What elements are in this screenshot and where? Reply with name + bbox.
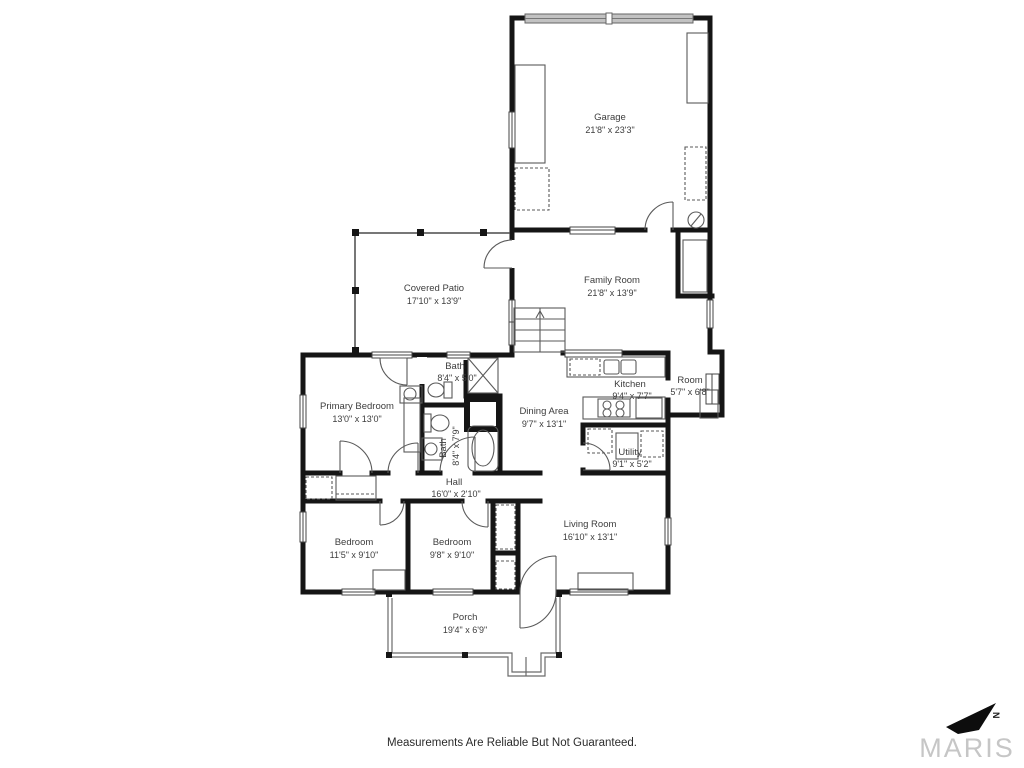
window-kitchen-family	[565, 350, 622, 357]
family-closet	[683, 240, 707, 292]
svg-text:Hall: Hall	[446, 477, 462, 488]
stairs	[514, 308, 565, 352]
svg-text:11'5" x 9'10": 11'5" x 9'10"	[330, 550, 379, 560]
room-label-family-room: Family Room 21'8" x 13'9"	[584, 275, 640, 298]
room-label-kitchen: Kitchen 9'4" x 7'7"	[612, 379, 651, 401]
svg-text:Room: Room	[677, 375, 702, 386]
svg-text:9'1" x 5'2": 9'1" x 5'2"	[612, 459, 651, 469]
door-front-porch	[520, 592, 556, 628]
svg-text:Bedroom: Bedroom	[433, 537, 472, 548]
svg-text:13'0" x 13'0": 13'0" x 13'0"	[332, 414, 381, 424]
logo-text: MARIS	[919, 733, 1015, 763]
svg-text:21'8" x 13'9": 21'8" x 13'9"	[587, 288, 636, 298]
compass-north-label: N	[991, 712, 1001, 719]
hall-closet-right	[336, 476, 376, 500]
svg-text:8'4" x 5'0": 8'4" x 5'0"	[437, 373, 476, 383]
svg-text:Covered Patio: Covered Patio	[404, 283, 464, 294]
svg-text:21'8" x 23'3": 21'8" x 23'3"	[585, 125, 634, 135]
room-label-primary-bedroom: Primary Bedroom 13'0" x 13'0"	[320, 401, 394, 424]
window-primary-left	[300, 395, 306, 428]
room-label-room: Room 5'7" x 6'8"	[670, 375, 709, 397]
window-bedroom-left	[300, 512, 306, 542]
room-label-bedroom-left: Bedroom 11'5" x 9'10"	[330, 537, 379, 560]
garage-shelf-right	[687, 33, 708, 103]
room-label-dining-area: Dining Area 9'7" x 13'1"	[519, 406, 569, 429]
svg-text:17'10" x 13'9": 17'10" x 13'9"	[407, 296, 461, 306]
bath-closet-block	[464, 396, 502, 432]
room-label-covered-patio: Covered Patio 17'10" x 13'9"	[404, 283, 464, 306]
window-bedroom1-bottom	[342, 589, 375, 595]
svg-text:Living Room: Living Room	[564, 519, 617, 530]
svg-text:Porch: Porch	[453, 612, 478, 623]
door-bedroom-middle	[462, 501, 488, 527]
room-label-utility: Utility 9'1" x 5'2"	[612, 447, 651, 469]
room-label-hall: Hall 16'0" x 2'10"	[431, 477, 480, 499]
window-bedroom2-bottom	[433, 589, 473, 595]
water-heater	[688, 212, 704, 228]
svg-text:Kitchen: Kitchen	[614, 379, 646, 390]
window-patio-top-2	[447, 352, 470, 358]
bathtub	[468, 426, 498, 471]
disclaimer-text: Measurements Are Reliable But Not Guaran…	[387, 737, 637, 749]
door-family-garage	[645, 202, 673, 230]
garage-storage-dashed	[515, 168, 549, 210]
bath-upper-vanity	[400, 386, 422, 403]
bath-upper-toilet	[428, 382, 452, 398]
svg-text:9'7" x 13'1": 9'7" x 13'1"	[522, 419, 566, 429]
window-living-right	[665, 518, 671, 545]
floorplan-page: Garage 21'8" x 23'3" Family Room 21'8" x…	[0, 0, 1024, 768]
svg-text:16'10" x 13'1": 16'10" x 13'1"	[563, 532, 617, 542]
room-label-porch: Porch 19'4" x 6'9"	[443, 612, 487, 635]
door-bath-upper	[380, 358, 407, 385]
porch-outline	[388, 594, 560, 676]
door-utility	[583, 443, 610, 470]
kitchen-counter-top	[567, 357, 665, 377]
room-label-garage: Garage 21'8" x 23'3"	[585, 112, 634, 135]
maris-logo: N MARIS	[919, 703, 1015, 763]
garage-workbench	[515, 65, 545, 163]
bath-lower-toilet	[424, 414, 449, 432]
svg-text:5'7" x 6'8": 5'7" x 6'8"	[670, 387, 709, 397]
svg-text:16'0" x 2'10": 16'0" x 2'10"	[431, 489, 480, 499]
door-front-interior	[520, 556, 556, 592]
svg-text:Utility: Utility	[618, 447, 641, 458]
hall-closet-left	[306, 477, 332, 499]
garage-storage-right	[685, 147, 706, 200]
window-family-right	[707, 300, 713, 328]
svg-text:Dining Area: Dining Area	[519, 406, 569, 417]
bedroom-dresser	[373, 570, 405, 590]
svg-text:9'4" x 7'7": 9'4" x 7'7"	[612, 391, 651, 401]
room-label-bedroom-middle: Bedroom 9'8" x 9'10"	[430, 537, 474, 560]
door-bedroom-left	[380, 501, 404, 525]
room-label-living-room: Living Room 16'10" x 13'1"	[563, 519, 617, 542]
window-patio-top-1	[372, 352, 412, 358]
svg-text:9'8" x 9'10": 9'8" x 9'10"	[430, 550, 474, 560]
closet-strip	[496, 505, 515, 589]
svg-text:8'4" x 7'9": 8'4" x 7'9"	[451, 426, 461, 465]
svg-text:Primary Bedroom: Primary Bedroom	[320, 401, 394, 412]
garage-door	[525, 13, 693, 24]
window-garage-left	[509, 112, 515, 148]
svg-text:19'4" x 6'9": 19'4" x 6'9"	[443, 625, 487, 635]
window-garage-family	[570, 227, 615, 234]
floorplan-canvas: Garage 21'8" x 23'3" Family Room 21'8" x…	[0, 0, 1024, 768]
compass-arrow-icon	[946, 703, 996, 734]
svg-text:Garage: Garage	[594, 112, 626, 123]
svg-text:Family Room: Family Room	[584, 275, 640, 286]
room-label-bath-upper: Bath 8'4" x 5'0"	[437, 361, 476, 383]
svg-text:Bath: Bath	[438, 438, 449, 458]
svg-text:Bedroom: Bedroom	[335, 537, 374, 548]
door-primary-1	[340, 441, 372, 473]
svg-text:Bath: Bath	[445, 361, 465, 372]
door-primary-2	[388, 443, 418, 473]
